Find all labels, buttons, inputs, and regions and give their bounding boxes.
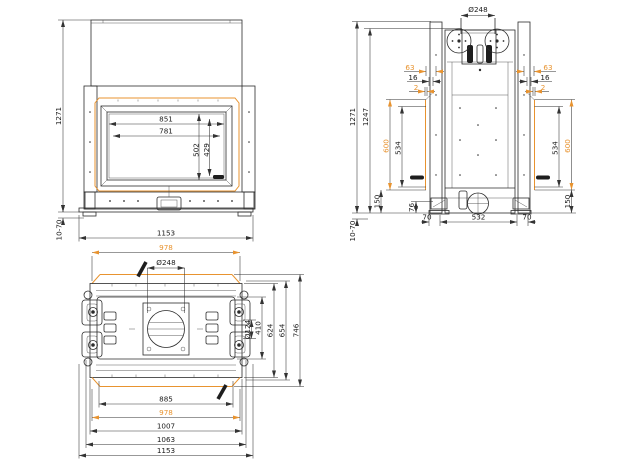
gasket-mark-bottom bbox=[218, 385, 226, 399]
technical-drawing: 1271 851 781 502 429 10-70 1153 Ø248 bbox=[0, 0, 624, 460]
dim-side-base-depth: 532 bbox=[472, 213, 486, 222]
drawing-canvas: 1271 851 781 502 429 10-70 1153 Ø248 bbox=[0, 0, 624, 460]
plan-flue-collar bbox=[143, 303, 189, 355]
dim-side-glass-height-left: 534 bbox=[394, 141, 403, 155]
side-base bbox=[429, 191, 531, 214]
dim-front-glass-height: 429 bbox=[202, 143, 211, 157]
front-door-handle bbox=[213, 175, 224, 179]
dim-side-frame-offset-left: 63 bbox=[405, 63, 414, 72]
dim-side-plinth-height-right: 150 bbox=[563, 194, 572, 208]
dim-side-foot-adjustment: 10-70 bbox=[348, 220, 357, 241]
dim-plan-glass-width: 885 bbox=[159, 395, 173, 404]
dim-side-foot-depth-right: 70 bbox=[522, 213, 532, 222]
dim-side-panel-offset-left: 16 bbox=[408, 73, 418, 82]
dim-plan-overall-width: 1153 bbox=[157, 446, 175, 455]
front-left-leg bbox=[85, 192, 95, 209]
dim-front-foot-adjustment: 10-70 bbox=[55, 219, 64, 240]
plan-view: 978 Ø248 Ø124 410 624 654 746 bbox=[79, 243, 304, 458]
side-glass-frames bbox=[410, 93, 550, 191]
dim-plan-rail-depth: 654 bbox=[278, 323, 287, 337]
side-right-handle bbox=[536, 176, 550, 180]
dim-side-frame-offset-right: 63 bbox=[543, 63, 552, 72]
plan-vent-slots bbox=[104, 312, 218, 344]
side-view: Ø248 bbox=[348, 5, 576, 242]
dim-plan-body-depth: 624 bbox=[266, 323, 275, 337]
dim-plan-bracket-width: 1063 bbox=[157, 435, 175, 444]
dim-plan-frame-width-top: 978 bbox=[159, 243, 173, 252]
dim-plan-frame-width-bottom: 978 bbox=[159, 408, 173, 417]
dim-side-foot-depth-left: 70 bbox=[422, 213, 432, 222]
dim-side-frame-height-left: 600 bbox=[382, 139, 391, 153]
front-view: 1271 851 781 502 429 10-70 1153 bbox=[54, 20, 255, 242]
left-strap bbox=[467, 45, 473, 63]
dim-front-opening-height: 502 bbox=[192, 143, 201, 157]
side-left-handle bbox=[410, 176, 424, 180]
plan-dimensions: 978 Ø248 Ø124 410 624 654 746 bbox=[79, 243, 304, 458]
dim-side-glass-height-right: 534 bbox=[551, 141, 560, 155]
side-body bbox=[445, 30, 515, 213]
front-side-columns bbox=[84, 86, 255, 192]
front-right-foot bbox=[238, 212, 251, 216]
side-pulleys bbox=[447, 29, 509, 71]
dim-side-foot-inset: 76 bbox=[407, 203, 416, 213]
dim-side-flue-diameter: Ø248 bbox=[468, 5, 488, 14]
dim-side-glass-offset-right: 2 bbox=[541, 83, 546, 92]
dim-plan-body-width: 1007 bbox=[157, 422, 175, 431]
front-right-leg bbox=[244, 192, 254, 209]
dim-side-overall-height: 1271 bbox=[348, 108, 357, 126]
dim-plan-firebox-depth: 410 bbox=[254, 321, 263, 335]
front-glass-frame bbox=[95, 98, 239, 191]
plan-body bbox=[90, 284, 242, 378]
dim-plan-pulley-diameter: Ø124 bbox=[243, 319, 252, 339]
dim-front-overall-height: 1271 bbox=[54, 107, 63, 125]
dim-side-body-height: 1247 bbox=[361, 108, 370, 126]
front-left-foot bbox=[83, 212, 96, 216]
dim-side-frame-height-right: 600 bbox=[563, 139, 572, 153]
dim-side-panel-offset-right: 16 bbox=[540, 73, 550, 82]
dim-front-opening-width: 851 bbox=[159, 115, 173, 124]
dim-plan-flue-diameter: Ø248 bbox=[156, 258, 176, 267]
dim-side-glass-offset-left: 2 bbox=[414, 83, 419, 92]
dim-plan-overall-depth: 746 bbox=[292, 323, 301, 337]
dim-side-plinth-height-left: 150 bbox=[373, 194, 382, 208]
front-hood bbox=[91, 20, 242, 86]
dim-front-overall-width: 1153 bbox=[157, 229, 175, 238]
dim-front-glass-width: 781 bbox=[159, 127, 173, 136]
